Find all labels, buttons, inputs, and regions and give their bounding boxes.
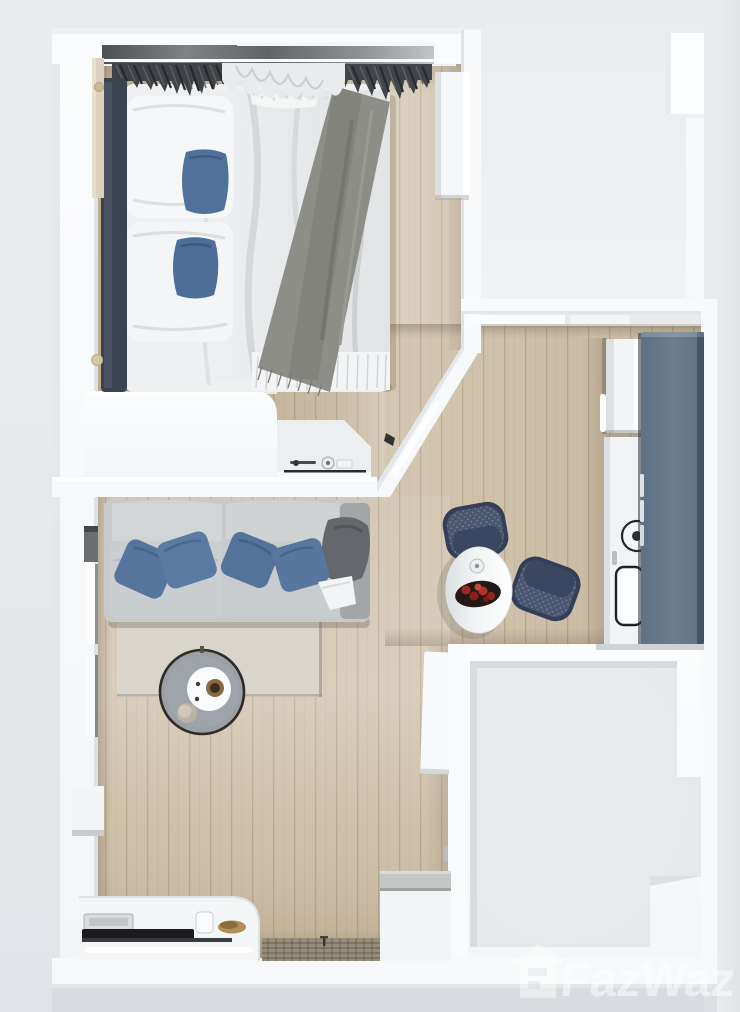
svg-text:FazWaz: FazWaz — [558, 953, 738, 1007]
